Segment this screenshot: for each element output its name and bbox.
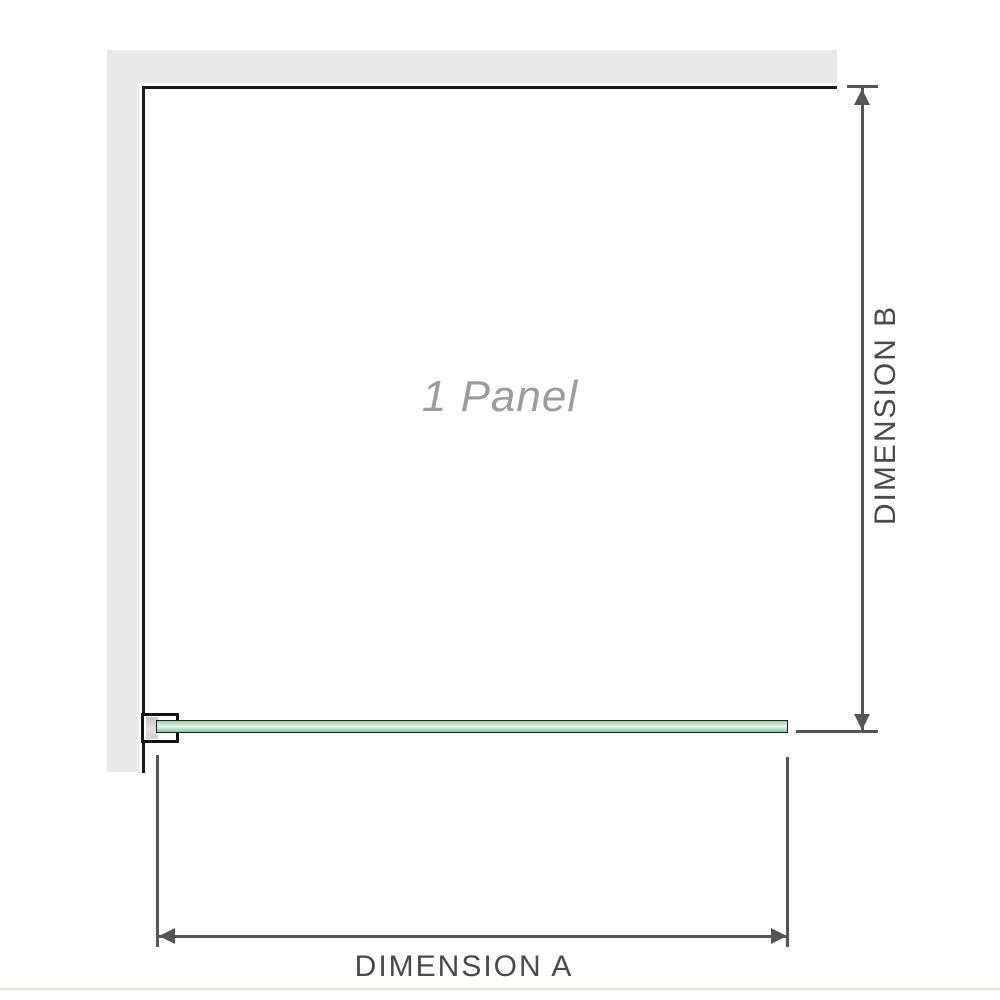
dimension-a-label: DIMENSION A (355, 950, 574, 984)
wall-top (107, 50, 837, 83)
dimension-a-extension-right (786, 757, 789, 947)
dimension-a-arrow-left-icon (159, 928, 175, 944)
enclosure-left-line (142, 86, 145, 773)
dimension-b-label: DIMENSION B (869, 305, 903, 525)
dimension-b-tick-bottom (796, 730, 878, 733)
shower-panel-diagram: 1 Panel DIMENSION B DIMENSION A (0, 0, 1000, 1000)
dimension-a-line (158, 935, 787, 938)
wall-left (107, 50, 139, 772)
enclosure-top-line (143, 86, 837, 89)
dimension-a-extension-left (156, 755, 159, 947)
glass-panel (156, 720, 788, 733)
dimension-b-line (861, 87, 864, 732)
dimension-a-arrow-right-icon (771, 928, 787, 944)
panel-count-label: 1 Panel (422, 372, 578, 422)
image-bottom-edge (0, 988, 1000, 990)
dimension-b-arrow-up-icon (854, 89, 870, 105)
dimension-b-arrow-down-icon (854, 714, 870, 730)
